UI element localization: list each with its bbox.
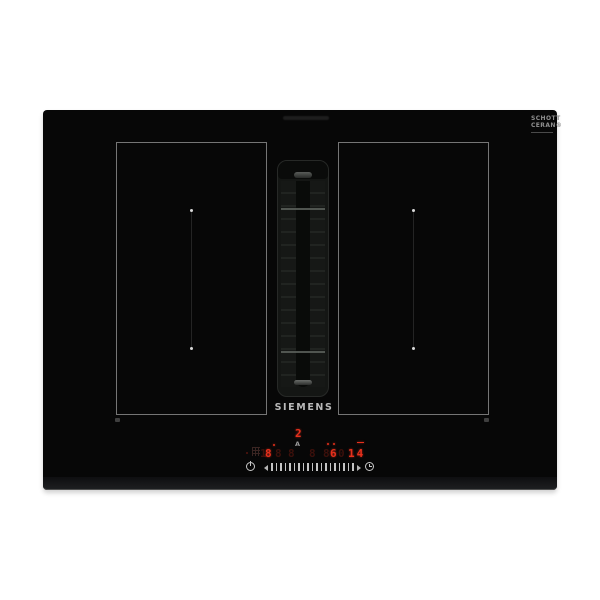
status-dot xyxy=(246,452,248,454)
slider-left-arrow-icon[interactable] xyxy=(264,465,268,471)
power-slider[interactable] xyxy=(271,463,354,471)
vent-bottom-handle[interactable] xyxy=(294,380,312,385)
zone-marker-dot xyxy=(190,347,193,350)
display-digit[interactable]: 8 xyxy=(309,448,316,459)
power-icon[interactable] xyxy=(246,462,255,471)
display-left-zone-level[interactable]: 8 xyxy=(265,448,272,459)
zone-id-mark-left xyxy=(115,418,120,422)
slider-right-arrow-icon[interactable] xyxy=(357,465,361,471)
vent-grille-right xyxy=(310,181,325,387)
zone-divider-line xyxy=(413,211,414,348)
display-digit[interactable]: 8 xyxy=(323,448,330,459)
vent-grille-left xyxy=(281,181,296,387)
cooking-zone-right xyxy=(338,142,489,415)
display-sup-dot xyxy=(273,444,275,446)
vent-divider-lower xyxy=(281,351,325,353)
timer-clock-icon[interactable] xyxy=(365,462,374,471)
vent-channel xyxy=(296,181,310,387)
hood-auto-indicator: A xyxy=(295,440,300,448)
cleaning-protection-icon[interactable] xyxy=(252,447,260,456)
display-right-zone-level[interactable]: 6 xyxy=(330,448,337,459)
display-sup-dot xyxy=(327,443,329,445)
zone-id-mark-right xyxy=(484,418,489,422)
zone-marker-dot xyxy=(412,209,415,212)
product-image: SCHOTT CERAN® SIEMENS xyxy=(0,0,600,600)
hob-front-edge xyxy=(43,477,557,490)
vent-handle[interactable] xyxy=(294,172,312,178)
induction-hob: SCHOTT CERAN® SIEMENS xyxy=(43,110,557,490)
glass-brand-line2: CERAN® xyxy=(531,122,562,129)
glass-brand-logo: SCHOTT CERAN® xyxy=(531,116,587,133)
zone-divider-line xyxy=(191,211,192,348)
timer-display[interactable]: 14 xyxy=(348,448,365,459)
model-marking xyxy=(283,116,329,120)
downdraft-vent-module xyxy=(277,160,329,397)
glass-brand-underline xyxy=(531,132,553,133)
timer-min-bar xyxy=(357,442,364,443)
display-digit[interactable]: 8 xyxy=(288,448,295,459)
display-digit[interactable]: 0 xyxy=(338,448,345,459)
zone-marker-dot xyxy=(412,347,415,350)
vent-divider-upper xyxy=(281,208,325,210)
brand-logo: SIEMENS xyxy=(269,402,339,413)
hood-level-display: 2 xyxy=(295,428,302,439)
cooking-zone-left xyxy=(116,142,267,415)
zone-marker-dot xyxy=(190,209,193,212)
display-sup-dot xyxy=(333,443,335,445)
display-digit[interactable]: 8 xyxy=(275,448,282,459)
